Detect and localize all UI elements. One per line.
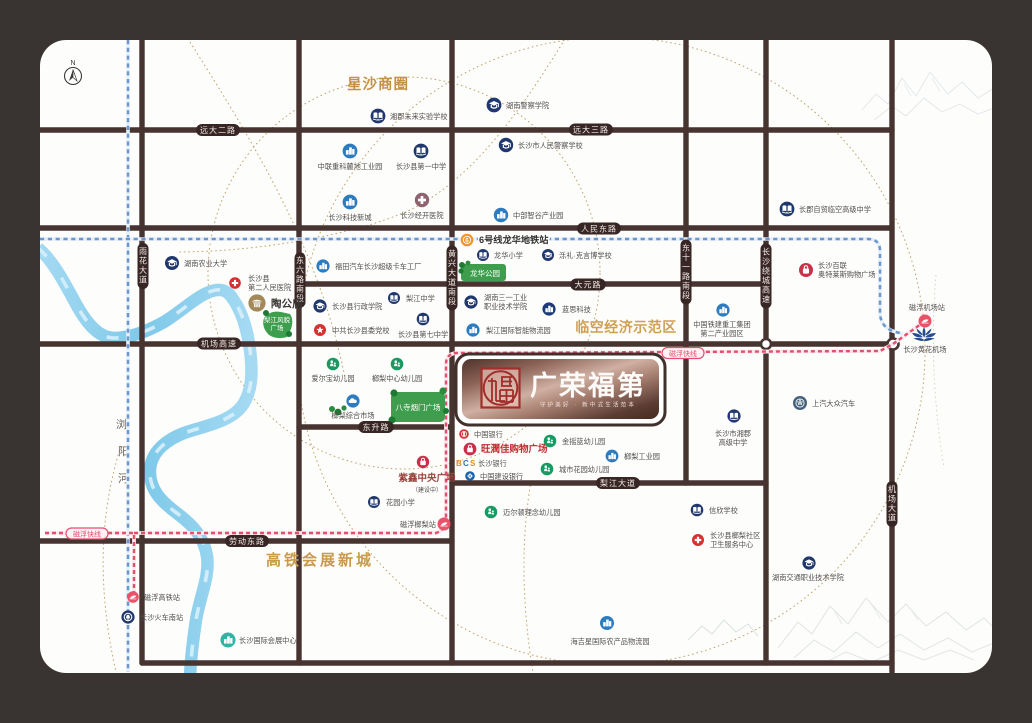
svg-text:奥特莱斯购物广场: 奥特莱斯购物广场 <box>818 270 876 279</box>
svg-text:守护美好 · 新中式生活范本: 守护美好 · 新中式生活范本 <box>540 401 636 409</box>
svg-text:（建设中）: （建设中） <box>412 486 442 494</box>
svg-text:湖南三一工业: 湖南三一工业 <box>484 293 527 302</box>
svg-text:绕: 绕 <box>762 265 770 275</box>
svg-text:紫鑫中央广场: 紫鑫中央广场 <box>398 472 456 484</box>
svg-text:远大二路: 远大二路 <box>200 125 236 135</box>
svg-text:长沙黄花机场: 长沙黄花机场 <box>903 345 946 354</box>
svg-text:金摇篮幼儿园: 金摇篮幼儿园 <box>562 437 605 446</box>
svg-text:兴: 兴 <box>448 259 456 268</box>
svg-text:湘郡未来实验学校: 湘郡未来实验学校 <box>390 112 448 121</box>
svg-text:长沙市人民警察学校: 长沙市人民警察学校 <box>518 141 583 150</box>
svg-text:龙华公园: 龙华公园 <box>470 268 500 278</box>
svg-text:八寺烟门广场: 八寺烟门广场 <box>396 402 441 412</box>
svg-text:6号线龙华地铁站: 6号线龙华地铁站 <box>479 234 549 245</box>
svg-text:陶公庙: 陶公庙 <box>271 297 303 310</box>
svg-text:梨江风貌: 梨江风貌 <box>264 315 291 324</box>
svg-text:广荣福第: 广荣福第 <box>530 370 646 401</box>
svg-text:沙: 沙 <box>762 257 770 266</box>
svg-text:上汽大众汽车: 上汽大众汽车 <box>812 399 855 408</box>
svg-text:花园小学: 花园小学 <box>386 498 415 507</box>
svg-text:中国铁建重工集团: 中国铁建重工集团 <box>693 320 751 329</box>
svg-text:雨: 雨 <box>139 247 147 256</box>
svg-text:中国建设银行: 中国建设银行 <box>480 472 523 481</box>
svg-text:大: 大 <box>139 265 147 275</box>
svg-text:大元路: 大元路 <box>575 280 602 290</box>
svg-text:榔梨中心幼儿园: 榔梨中心幼儿园 <box>372 374 422 383</box>
svg-text:长沙县榔梨社区: 长沙县榔梨社区 <box>710 531 760 540</box>
svg-text:高铁会展新城: 高铁会展新城 <box>266 551 374 569</box>
svg-text:榔梨工业园: 榔梨工业园 <box>624 452 660 461</box>
svg-text:长郡自贸临空高级中学: 长郡自贸临空高级中学 <box>799 205 871 214</box>
svg-text:C: C <box>463 459 469 468</box>
svg-text:旺潤佳购物广场: 旺潤佳购物广场 <box>481 443 548 455</box>
svg-text:东: 东 <box>296 255 304 265</box>
svg-text:长沙市湘郡: 长沙市湘郡 <box>715 429 751 438</box>
svg-text:大: 大 <box>888 503 896 513</box>
svg-text:磁浮快线: 磁浮快线 <box>669 349 697 358</box>
svg-text:爱尔宝幼儿园: 爱尔宝幼儿园 <box>311 374 354 383</box>
svg-text:湖南警察学院: 湖南警察学院 <box>506 101 549 110</box>
svg-text:磁浮快线: 磁浮快线 <box>73 530 101 539</box>
svg-text:机场高速: 机场高速 <box>201 339 237 349</box>
svg-text:中国银行: 中国银行 <box>474 430 503 439</box>
svg-text:第二人民医院: 第二人民医院 <box>248 283 291 292</box>
svg-text:一: 一 <box>682 262 690 271</box>
svg-text:机: 机 <box>888 484 896 494</box>
svg-text:卫生服务中心: 卫生服务中心 <box>710 540 753 549</box>
svg-text:长沙县行政学院: 长沙县行政学院 <box>332 302 382 311</box>
svg-text:道: 道 <box>448 277 456 287</box>
svg-text:道: 道 <box>888 512 896 522</box>
svg-text:临空经济示范区: 临空经济示范区 <box>575 319 677 335</box>
svg-text:中共长沙县委党校: 中共长沙县委党校 <box>332 326 390 335</box>
svg-text:榔梨综合市场: 榔梨综合市场 <box>331 411 374 420</box>
svg-text:场: 场 <box>888 494 896 503</box>
svg-text:远大三路: 远大三路 <box>573 125 609 135</box>
svg-text:人民东路: 人民东路 <box>581 224 617 234</box>
svg-text:湖南交通职业技术学院: 湖南交通职业技术学院 <box>772 573 844 582</box>
svg-text:磁浮榔梨站: 磁浮榔梨站 <box>400 520 436 529</box>
svg-text:第二产业园区: 第二产业园区 <box>700 329 743 338</box>
svg-text:东: 东 <box>682 242 690 252</box>
svg-text:磁浮机场站: 磁浮机场站 <box>909 303 945 312</box>
svg-text:广场: 广场 <box>271 323 285 332</box>
svg-text:长沙经开医院: 长沙经开医院 <box>400 211 443 220</box>
svg-text:梨江大道: 梨江大道 <box>600 478 636 488</box>
svg-text:大: 大 <box>448 267 456 277</box>
svg-text:海吉星国际农产品物流园: 海吉星国际农产品物流园 <box>570 637 649 646</box>
svg-text:泺礼·克言博学校: 泺礼·克言博学校 <box>559 251 612 260</box>
svg-text:段: 段 <box>448 296 456 306</box>
svg-text:B: B <box>456 459 462 468</box>
svg-text:南: 南 <box>448 286 456 296</box>
svg-text:中联重科麓地工业园: 中联重科麓地工业园 <box>318 162 383 171</box>
svg-text:速: 速 <box>762 295 770 304</box>
svg-text:职业技术学院: 职业技术学院 <box>484 302 527 311</box>
svg-text:长沙县: 长沙县 <box>248 274 270 283</box>
svg-text:长沙百联: 长沙百联 <box>818 261 847 270</box>
svg-text:长沙科技新城: 长沙科技新城 <box>328 213 371 222</box>
svg-text:福田汽车长沙超级卡车工厂: 福田汽车长沙超级卡车工厂 <box>335 262 421 271</box>
svg-text:梨江国际智能物流园: 梨江国际智能物流园 <box>486 326 551 335</box>
svg-text:星沙商圈: 星沙商圈 <box>347 75 409 93</box>
svg-text:长沙火车南站: 长沙火车南站 <box>140 613 183 622</box>
svg-text:磁浮高铁站: 磁浮高铁站 <box>144 593 180 602</box>
svg-text:长沙县第一中学: 长沙县第一中学 <box>396 162 446 171</box>
svg-text:长沙县第七中学: 长沙县第七中学 <box>398 330 448 339</box>
svg-text:段: 段 <box>682 290 690 300</box>
svg-text:花: 花 <box>139 255 147 265</box>
svg-text:迈尔顿理念幼儿园: 迈尔顿理念幼儿园 <box>503 508 561 517</box>
svg-text:长沙银行: 长沙银行 <box>478 459 507 468</box>
svg-text:城市花园幼儿园: 城市花园幼儿园 <box>559 465 609 474</box>
svg-text:梨江中学: 梨江中学 <box>406 294 435 303</box>
svg-text:高: 高 <box>762 284 770 294</box>
svg-text:东升路: 东升路 <box>363 422 390 432</box>
svg-text:劳动东路: 劳动东路 <box>229 536 265 546</box>
svg-text:信欣学校: 信欣学校 <box>709 506 738 515</box>
svg-text:道: 道 <box>139 274 147 284</box>
svg-text:浏: 浏 <box>116 417 127 431</box>
svg-text:长: 长 <box>762 246 770 256</box>
svg-text:城: 城 <box>762 276 770 285</box>
svg-text:六: 六 <box>296 265 304 275</box>
svg-text:N: N <box>70 60 75 67</box>
svg-text:蓝思科技: 蓝思科技 <box>562 305 591 314</box>
svg-text:南: 南 <box>682 280 690 290</box>
svg-text:高级中学: 高级中学 <box>719 438 748 447</box>
svg-text:十: 十 <box>682 252 690 262</box>
svg-text:路: 路 <box>296 274 304 284</box>
svg-text:长沙国际会展中心: 长沙国际会展中心 <box>239 636 297 645</box>
svg-text:龙华小学: 龙华小学 <box>494 251 523 260</box>
svg-text:中部智谷产业园: 中部智谷产业园 <box>513 211 563 220</box>
svg-text:路: 路 <box>682 271 690 281</box>
svg-text:南: 南 <box>296 284 304 294</box>
svg-text:S: S <box>470 459 476 468</box>
svg-text:湖南农业大学: 湖南农业大学 <box>184 259 227 268</box>
svg-text:黄: 黄 <box>448 248 456 258</box>
